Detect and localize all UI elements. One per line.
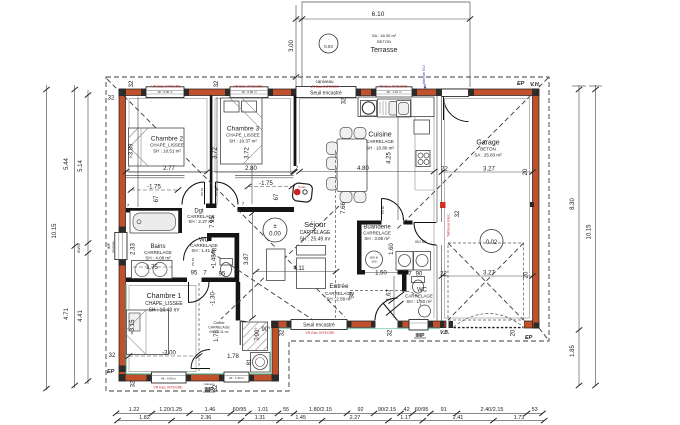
svg-text:90: 90 [416,272,423,278]
svg-text:CARRELAGE: CARRELAGE [363,231,391,236]
svg-text:Terrasse: Terrasse [371,47,398,54]
svg-text:Cellier: Cellier [213,320,225,325]
svg-text:SH : 10.51 m²: SH : 10.51 m² [153,149,181,154]
svg-text:PS 83: PS 83 [200,188,204,197]
svg-text:All : 0.90 m: All : 0.90 m [241,90,257,94]
svg-text:3.87: 3.87 [244,253,250,265]
svg-text:32: 32 [213,384,219,391]
svg-text:200: 200 [371,260,376,264]
svg-text:Cuisine: Cuisine [368,132,391,139]
svg-text:95: 95 [191,271,198,277]
svg-text:SH : 10.48 m²: SH : 10.48 m² [149,308,180,314]
svg-text:42: 42 [404,407,410,413]
svg-text:EP: EP [517,81,525,87]
svg-text:4.71: 4.71 [64,308,70,320]
svg-text:SA : 18.30 m²: SA : 18.30 m² [372,33,397,38]
svg-text:90°: 90° [261,327,271,333]
svg-text:2.77: 2.77 [163,166,175,172]
svg-text:CARRELAGE: CARRELAGE [366,139,394,144]
svg-text:20: 20 [511,329,517,336]
svg-text:Seuil encastré: Seuil encastré [310,90,342,96]
svg-text:4.80: 4.80 [357,166,369,172]
svg-text:SH : 10.80 m²: SH : 10.80 m² [366,146,394,151]
svg-text:-3.00: -3.00 [162,351,176,357]
svg-text:90/2.15: 90/2.15 [378,407,396,413]
svg-text:7 95: 7 95 [210,216,216,228]
svg-text:92: 92 [357,407,363,413]
svg-text:3.00: 3.00 [289,40,295,52]
svg-text:CHAPE_LISSEE: CHAPE_LISSEE [226,133,260,138]
svg-text:20: 20 [524,271,530,278]
svg-text:1.60: 1.60 [389,243,395,255]
svg-text:VR Eau INTEGRE: VR Eau INTEGRE [310,85,339,89]
svg-text:PS 80: PS 80 [381,206,385,215]
svg-text:EP: EP [107,369,115,375]
svg-text:0.00: 0.00 [269,232,281,238]
svg-text:7∕90°: 7∕90° [254,327,261,341]
svg-text:4.11: 4.11 [293,266,305,272]
svg-text:20: 20 [523,168,529,175]
svg-text:1.82: 1.82 [139,415,150,421]
svg-text:V.B.: V.B. [440,330,449,336]
svg-text:ISO 83: ISO 83 [415,240,426,244]
svg-text:32: 32 [214,80,220,87]
svg-text:8.30: 8.30 [570,198,576,210]
svg-text:PS 83: PS 83 [191,258,195,267]
svg-text:2.41: 2.41 [453,415,464,421]
svg-text:VR Elec INTEGRE: VR Elec INTEGRE [305,331,335,335]
svg-text:1.80/2.15: 1.80/2.15 [309,407,332,413]
svg-text:Chambre 2: Chambre 2 [151,136,184,143]
svg-text:0.04: 0.04 [324,44,333,49]
svg-text:32: 32 [350,291,356,298]
svg-text:-1.75: -1.75 [147,185,161,191]
svg-text:CARRELAGE: CARRELAGE [144,250,172,255]
svg-text:SA : 25.83 m²: SA : 25.83 m² [474,153,502,158]
svg-text:32: 32 [280,329,286,336]
svg-text:caniveau: caniveau [315,79,334,84]
svg-text:60/95: 60/95 [233,407,247,413]
svg-text:2.40/2.15: 2.40/2.15 [481,407,504,413]
svg-text:53: 53 [532,407,538,413]
svg-text:32: 32 [109,353,116,359]
svg-text:1.78: 1.78 [214,330,220,342]
svg-text:55: 55 [283,407,289,413]
svg-text:1.73: 1.73 [514,415,525,421]
svg-text:32: 32 [388,329,394,336]
svg-text:1.46: 1.46 [205,407,216,413]
svg-text:≈3.89: ≈3.89 [129,143,135,159]
svg-text:CARRELAGE: CARRELAGE [405,294,433,299]
svg-text:caniveau: caniveau [111,241,115,253]
svg-text:67: 67 [154,195,160,202]
svg-text:Attente EU: Attente EU [421,65,426,84]
svg-text:2.36: 2.36 [201,415,212,421]
svg-text:3.72: 3.72 [245,147,251,159]
svg-text:81: 81 [247,358,253,365]
svg-text:32: 32 [129,80,135,87]
svg-text:22: 22 [440,272,447,278]
svg-text:CARRELAGE: CARRELAGE [208,326,230,330]
svg-text:1.45: 1.45 [295,415,306,421]
svg-text:32: 32 [108,96,115,102]
svg-text:1.17: 1.17 [400,415,411,421]
svg-text:7.66: 7.66 [341,202,347,214]
svg-text:PS 83: PS 83 [215,188,219,197]
svg-text:32: 32 [131,380,137,387]
svg-text:32: 32 [342,97,348,104]
svg-text:1.22: 1.22 [129,407,140,413]
svg-text:All : 1.30 m: All : 1.30 m [229,376,245,380]
svg-text:All : 0.90 m: All : 0.90 m [161,377,177,381]
svg-text:0.02: 0.02 [486,240,498,246]
svg-text:•1.48 mˉ: •1.48 mˉ [212,246,218,268]
svg-text:10.15: 10.15 [52,223,58,239]
svg-text:SH : 2.58 m²: SH : 2.58 m² [326,297,352,302]
svg-text:2.27: 2.27 [350,415,361,421]
svg-text:CARRELAGE: CARRELAGE [300,230,332,236]
svg-text:V.H.: V.H. [530,82,541,88]
svg-text:·: · [328,37,330,42]
svg-text:Chambre 1: Chambre 1 [147,293,182,300]
svg-text:1.50: 1.50 [375,271,387,277]
svg-text:VR Elec INTEGRE: VR Elec INTEGRE [233,85,263,89]
svg-text:Entrée: Entrée [329,283,349,290]
svg-text:2.33: 2.33 [131,243,137,255]
svg-text:BETON: BETON [377,39,391,44]
svg-text:SH : 1.50 m²: SH : 1.50 m² [406,299,432,304]
svg-text:VR Elec INTEGRE: VR Elec INTEGRE [151,85,181,89]
svg-text:60/95: 60/95 [415,407,429,413]
svg-text:6.10: 6.10 [372,11,385,18]
svg-text:VR Eau INTEGRE: VR Eau INTEGRE [379,85,408,89]
svg-text:EP: EP [525,335,533,341]
svg-text:3.72: 3.72 [213,147,219,159]
svg-text:SH : 4.08 m²: SH : 4.08 m² [145,256,171,261]
svg-text:22: 22 [441,167,448,173]
svg-text:Seuil encastré: Seuil encastré [303,323,335,329]
svg-text:5.44: 5.44 [64,158,70,170]
svg-text:SH : 25.49 m²: SH : 25.49 m² [300,237,331,243]
svg-text:91: 91 [441,407,447,413]
svg-text:3.27: 3.27 [483,271,495,277]
svg-text:VR Elec INTEGRE: VR Elec INTEGRE [153,386,183,390]
svg-text:5.14: 5.14 [78,160,84,172]
svg-text:Chambre 3: Chambre 3 [227,126,260,133]
svg-text:2.80: 2.80 [245,166,257,172]
svg-text:SH : 3.95 m²: SH : 3.95 m² [364,236,390,241]
svg-text:60/95: 60/95 [76,242,81,253]
svg-text:-1.75: -1.75 [259,181,273,187]
svg-text:3.27: 3.27 [483,167,495,173]
svg-text:≈3.15: ≈3.15 [130,319,136,335]
svg-text:CHAPE_LISSEE: CHAPE_LISSEE [150,143,184,148]
svg-text:All : 1.10 m: All : 1.10 m [386,90,402,94]
svg-text:-1.30-: -1.30- [211,290,217,306]
svg-text:1.78: 1.78 [227,354,239,360]
svg-text:1.85: 1.85 [570,345,576,357]
svg-text:Tableau Elec.: Tableau Elec. [446,213,451,237]
svg-text:Pôele: Pôele [298,185,306,189]
svg-text:32: 32 [455,210,461,217]
svg-text:10.15: 10.15 [587,224,593,240]
svg-text:1.31: 1.31 [255,415,266,421]
svg-text:BETON: BETON [480,147,495,152]
svg-text:1.67: 1.67 [387,289,393,301]
svg-text:95: 95 [219,272,226,278]
svg-text:4.25: 4.25 [387,152,393,164]
svg-text:Séjour: Séjour [304,220,326,229]
svg-text:1.75: 1.75 [146,265,158,271]
svg-text:1.01: 1.01 [258,407,269,413]
svg-text:1.20/1.25: 1.20/1.25 [159,407,182,413]
svg-text:4.41: 4.41 [78,310,84,322]
svg-text:67: 67 [274,193,280,200]
svg-text:SH : 10.37 m²: SH : 10.37 m² [229,139,257,144]
svg-text:Garage: Garage [476,140,499,147]
svg-text:All : 0.90 m: All : 0.90 m [157,90,173,94]
svg-text:CHAPE_LISSEE: CHAPE_LISSEE [145,301,183,307]
